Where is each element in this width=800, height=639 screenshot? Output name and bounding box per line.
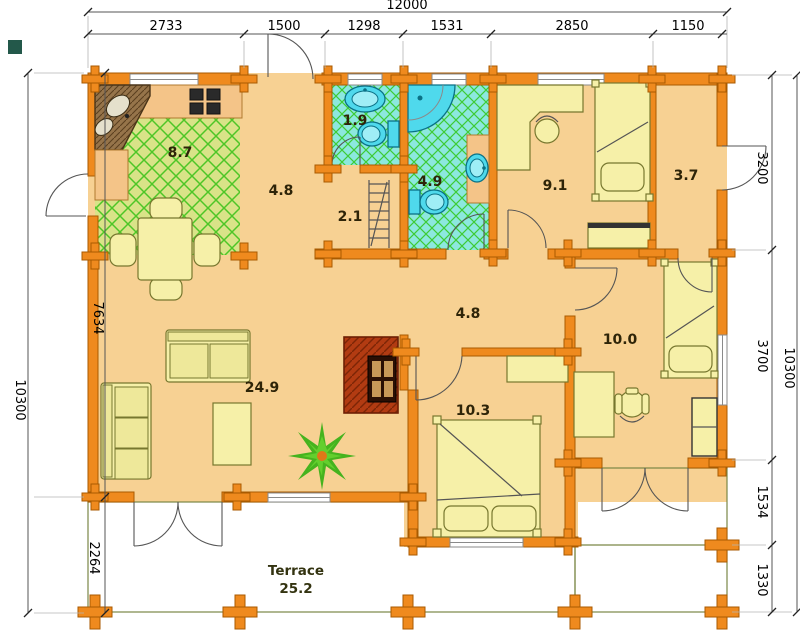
hall-middle-area-label: 4.8 xyxy=(456,306,481,322)
terrace-name-label: Terrace xyxy=(268,563,324,579)
bathroom-toilet xyxy=(409,190,448,214)
dim-top-segments: 2733 1500 1298 1531 2850 1150 xyxy=(84,19,727,38)
living-area-label: 24.9 xyxy=(245,380,280,396)
dining-chair-bottom xyxy=(150,278,182,300)
bathroom-sink xyxy=(466,154,488,182)
kitchen-area-label: 8.7 xyxy=(168,145,193,161)
kitchen-counter-left xyxy=(95,150,128,200)
window-living xyxy=(268,493,330,502)
dining-chair-left xyxy=(110,234,136,266)
dim-label-top-seg-0: 2733 xyxy=(149,19,182,34)
dim-label-top-seg-1: 1500 xyxy=(267,19,300,34)
terrace-french-door xyxy=(134,502,222,546)
office-desk xyxy=(574,372,614,437)
dim-label-top-seg-3: 1531 xyxy=(430,19,463,34)
dim-label-right-total: 10300 xyxy=(781,347,796,388)
dim-right-total: 10300 xyxy=(781,71,800,616)
wall-bed3-left xyxy=(408,390,418,547)
wall-right-lower xyxy=(717,190,727,468)
dim-label-top-total: 12000 xyxy=(386,0,427,13)
window-bathroom xyxy=(432,74,466,85)
floor-plan-svg: 8.7 4.8 1.9 4.9 2.1 9.1 3.7 4.8 10.0 24.… xyxy=(0,0,800,639)
desk-chair xyxy=(535,116,559,143)
single-bed-top xyxy=(592,80,653,201)
dresser-bottom xyxy=(507,356,568,382)
dim-label-top-seg-4: 2850 xyxy=(555,19,588,34)
wall-bath-right xyxy=(489,73,497,259)
dim-label-right-seg-3: 1330 xyxy=(754,563,769,596)
dining-chair-right xyxy=(194,234,220,266)
window-kitchen xyxy=(130,74,198,85)
wc-area-label: 1.9 xyxy=(343,113,368,129)
front-door xyxy=(268,34,313,79)
dining-chair-top xyxy=(150,198,182,220)
dim-label-left-total: 10300 xyxy=(12,379,27,420)
double-bed xyxy=(433,416,541,537)
wc-sink xyxy=(345,86,385,112)
window-bedroom-right xyxy=(718,335,727,405)
window-wc xyxy=(348,74,382,85)
hall-top-area-label: 4.8 xyxy=(269,183,294,199)
bedroom-top-area-label: 9.1 xyxy=(543,178,568,194)
dim-label-left-seg-1: 2264 xyxy=(86,541,101,574)
plant xyxy=(288,422,356,490)
bedroom-right-area-label: 10.0 xyxy=(603,332,638,348)
dresser-top xyxy=(588,223,650,248)
single-bed-right xyxy=(661,259,718,378)
balcony-door-left xyxy=(46,174,88,216)
bathroom-area-label: 4.9 xyxy=(418,174,443,190)
coffee-table xyxy=(213,403,251,465)
floor-plan: 8.7 4.8 1.9 4.9 2.1 9.1 3.7 4.8 10.0 24.… xyxy=(0,0,800,639)
dining-table xyxy=(138,218,192,280)
dim-label-left-seg-0: 7634 xyxy=(90,301,105,334)
entry-area-label: 3.7 xyxy=(674,168,699,184)
fireplace xyxy=(344,337,398,413)
sofa-left xyxy=(101,383,151,479)
terrace-area-label: 25.2 xyxy=(279,581,312,597)
dim-label-right-seg-0: 3200 xyxy=(754,151,769,184)
dim-label-right-seg-1: 3700 xyxy=(754,339,769,372)
dim-label-right-seg-2: 1534 xyxy=(754,485,769,518)
dim-left-total: 10300 xyxy=(12,69,32,617)
dim-label-top-seg-2: 1298 xyxy=(347,19,380,34)
corridor-area-label: 2.1 xyxy=(338,209,363,225)
dim-label-top-seg-5: 1150 xyxy=(671,19,704,34)
dim-right-segments: 3200 3700 1534 1330 xyxy=(754,71,776,616)
bedroom-bottom-area-label: 10.3 xyxy=(456,403,491,419)
dim-top-total: 12000 xyxy=(84,0,731,16)
wall-top-right xyxy=(322,73,727,85)
corner-logo-mark xyxy=(8,40,22,54)
window-bedroom-bottom xyxy=(450,538,523,547)
wardrobe xyxy=(692,398,717,456)
sofa-top xyxy=(166,330,250,382)
